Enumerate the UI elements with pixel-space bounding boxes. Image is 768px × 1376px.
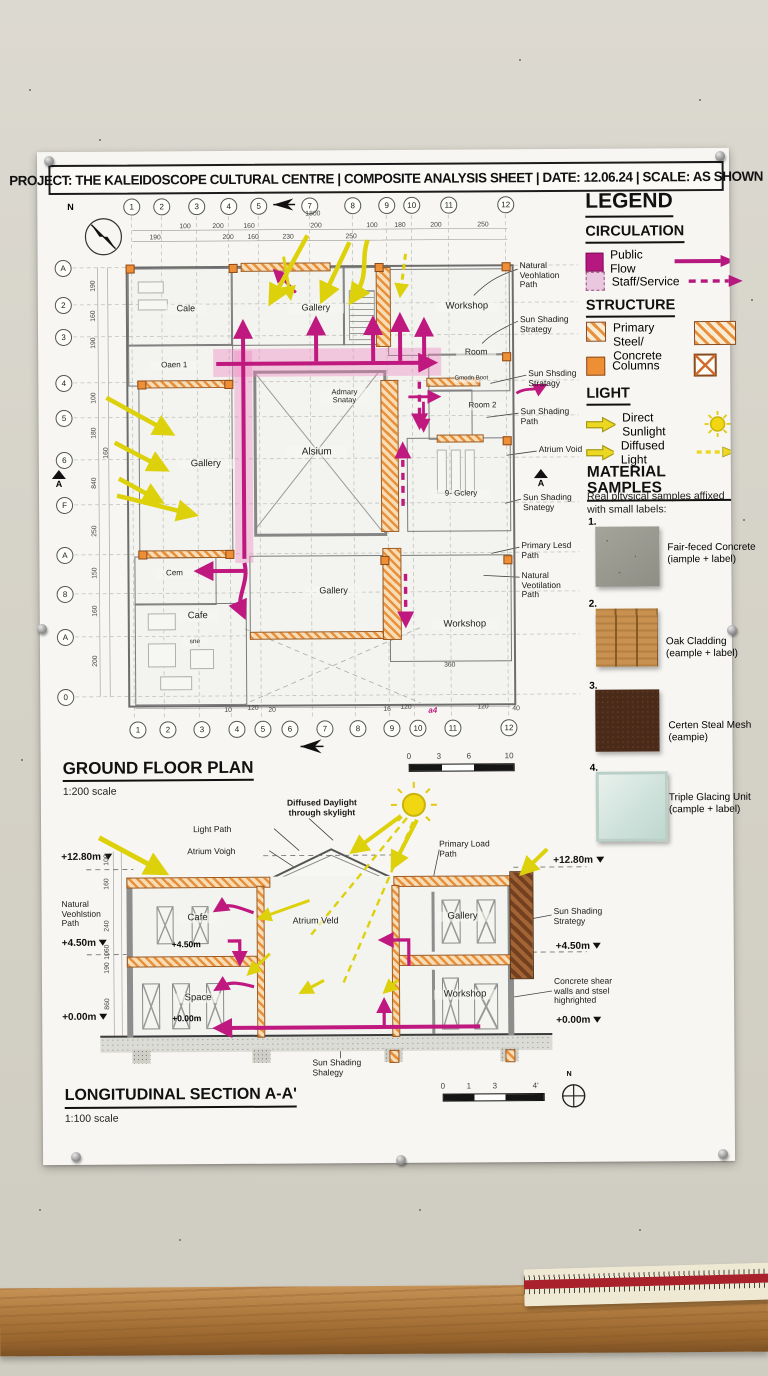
dim-label: 1060 [104, 945, 111, 960]
grid-bubble: F [56, 497, 73, 514]
dim-label: 160 [103, 878, 110, 889]
grid-bubble: 3 [188, 198, 205, 215]
material-sample-oak [596, 608, 658, 666]
dim-label: 120 [247, 705, 258, 712]
grid-bubble: 8 [349, 720, 366, 737]
material-sample-corten [595, 689, 659, 751]
legend-title: LEGEND [585, 190, 673, 218]
room-label: Gallery [288, 303, 344, 313]
scalebar-tick: 3 [437, 752, 442, 761]
section-cut-arrow [295, 734, 323, 756]
push-pin [727, 625, 737, 635]
push-pin [37, 624, 47, 634]
grid-bubble: 10 [409, 720, 426, 737]
dim-label: 190 [90, 280, 97, 291]
dim-label: 190 [104, 962, 111, 973]
callout-label: Sun Shading Shalegy [312, 1058, 368, 1077]
dim-label: 360 [444, 662, 455, 669]
room-label: Space [176, 993, 220, 1004]
material-label: Certen Steal Mesh (eampie) [668, 720, 758, 745]
section-label: Sun Shading Strategy [554, 907, 616, 926]
callout-label: Sun Shading Strategy [520, 315, 578, 334]
level-label: +12.80m [553, 855, 604, 866]
grid-bubble: 3 [193, 721, 210, 738]
legend-label: Staff/Service [612, 274, 680, 288]
dim-label: 160 [92, 605, 99, 616]
room-label: Gmodn Boot [454, 375, 488, 382]
level-label: +4.50m [62, 938, 107, 949]
dim-label: 250 [477, 221, 488, 228]
grid-bubble: 6 [56, 452, 73, 469]
grid-bubble: 1 [123, 198, 140, 215]
grid-bubble: 2 [55, 297, 72, 314]
diffused-dashed-arrow-icon [694, 445, 730, 459]
grid-bubble: A [56, 547, 73, 564]
level-inner: +4.50m [172, 939, 201, 949]
public-flow-swatch [586, 252, 604, 271]
grid-bubble: 0 [57, 689, 74, 706]
primary-structure-swatch [586, 322, 606, 342]
room-label: Workshop [436, 301, 498, 312]
level-label: +0.00m [556, 1015, 601, 1026]
staff-service-arrow-icon [686, 273, 742, 287]
material-sample-concrete [595, 526, 659, 586]
dim-label: 190 [149, 234, 160, 241]
grid-bubble: 3 [55, 329, 72, 346]
dim-label: 1800 [305, 210, 320, 217]
dim-label: 120 [477, 703, 488, 710]
dim-label: 860 [104, 998, 111, 1009]
room-label: sne [182, 638, 208, 645]
legend-item-direct-sunlight: Direct Sunlight [585, 410, 731, 439]
sun-icon [704, 410, 731, 438]
section-label: Diffused Daylight through skylight [276, 798, 368, 818]
grid-bubble: 11 [444, 720, 461, 737]
callout-label: Natural Veotilation Path [521, 571, 579, 600]
dim-label: 100 [179, 223, 190, 230]
scalebar-tick: 0 [407, 752, 412, 761]
callout-label: Primary Lesd Path [521, 541, 579, 560]
dim-label: 190 [90, 337, 97, 348]
grid-bubble: 5 [250, 198, 267, 215]
columns-swatch [586, 356, 605, 375]
dim-label: 840 [91, 477, 98, 488]
dim-label: 230 [282, 234, 293, 241]
north-compass-icon [73, 207, 125, 259]
public-flow-arrow-icon [673, 254, 730, 268]
grid-bubble: 5 [55, 410, 72, 427]
callout-label: Atrium Void [539, 445, 585, 455]
room-label: Cafe [178, 611, 218, 622]
legend-item-staff-service: Staff/Service [586, 271, 743, 291]
scalebar-tick: 6 [467, 751, 472, 760]
room-label: Room [456, 347, 496, 357]
room-label: Cafe [178, 913, 218, 924]
section-label: Light Path [193, 825, 247, 835]
primary-structure-sample [694, 321, 736, 345]
material-label: Oak Cladding (eample + label) [666, 636, 760, 661]
room-label: Atrium Veld [292, 916, 340, 926]
dim-label: 120 [400, 704, 411, 711]
dim-label: 200 [212, 223, 223, 230]
dim-label: 10 [224, 707, 232, 714]
legend-circulation-title: CIRCULATION [585, 224, 684, 244]
room-label: Workshop [432, 619, 498, 630]
push-pin [44, 156, 54, 166]
dim-label: 200 [222, 234, 233, 241]
dim-marker: a4 [428, 706, 437, 715]
grid-bubble: 1 [129, 721, 146, 738]
legend-label: Columns [612, 358, 686, 372]
dim-label: 250 [345, 233, 356, 240]
section-north-compass-icon [557, 1077, 591, 1111]
grid-bubble: 4 [228, 721, 245, 738]
level-label: +4.50m [556, 941, 601, 952]
scalebar-tick: 0 [441, 1082, 446, 1091]
dim-label: 100 [90, 392, 97, 403]
room-label: Cem [155, 569, 193, 578]
room-label: Gallery [436, 911, 490, 922]
legend-light-title: LIGHT [586, 387, 630, 406]
grid-bubble: 11 [440, 197, 457, 214]
diffused-light-arrow-icon [585, 445, 614, 461]
scalebar-tick: 4' [533, 1081, 539, 1090]
section-label: Atrium Voigh [187, 847, 249, 857]
material-sample-glass [596, 771, 668, 841]
callout-label: Sun Shading Snategy [523, 493, 581, 512]
scale-ruler [524, 1263, 768, 1307]
callout-label: Natural Veohlation Path [520, 261, 578, 290]
room-label: Admary Snatay [320, 388, 368, 405]
plan-scale: 1:200 scale [63, 786, 117, 798]
grid-bubble: A [57, 629, 74, 646]
dim-label: 16 [383, 706, 391, 713]
section-scale: 1:100 scale [65, 1113, 119, 1125]
north-label: N [567, 1071, 572, 1078]
level-inner: +0.00m [172, 1013, 201, 1023]
scalebar-tick: 3 [493, 1081, 498, 1090]
grid-bubble: 4 [55, 375, 72, 392]
section-cut-arrow [269, 195, 295, 215]
section-label: Primary Load Path [439, 839, 491, 858]
staff-service-swatch [586, 272, 605, 291]
dim-label: 150 [91, 567, 98, 578]
legend-label: Direct Sunlight [622, 410, 697, 438]
section-label: Concrete shear walls and stsel highright… [554, 977, 620, 1006]
room-label: Oaen 1 [150, 361, 198, 370]
north-label: N [67, 202, 74, 212]
dim-label: 40 [512, 705, 520, 712]
room-label: Room 2 [460, 401, 504, 410]
grid-bubble: 10 [403, 197, 420, 214]
dim-label: 200 [430, 222, 441, 229]
dim-label: 200 [310, 222, 321, 229]
grid-bubble: 5 [254, 721, 271, 738]
dim-label: 20 [268, 707, 276, 714]
dim-label: 180 [394, 222, 405, 229]
dim-label: 100 [103, 854, 110, 865]
legend-structure-title: STRUCTURE [586, 298, 676, 318]
column-xbox-icon [693, 353, 717, 377]
plan-scalebar [409, 763, 515, 772]
grid-bubble: 8 [344, 197, 361, 214]
section-scalebar [443, 1093, 545, 1102]
grid-bubble: 2 [153, 198, 170, 215]
grid-bubble: 4 [220, 198, 237, 215]
direct-sunlight-arrow-icon [585, 417, 616, 433]
push-pin [715, 151, 725, 161]
materials-subtitle: Real pltysical samples affixed with smal… [587, 490, 737, 516]
dim-label: 160 [243, 223, 254, 230]
dim-label: 160 [103, 447, 110, 458]
scalebar-tick: 10 [505, 751, 514, 760]
dim-label: 250 [91, 525, 98, 536]
material-label: Fair-feced Concrete (iample + label) [667, 542, 759, 567]
dim-label: 200 [92, 655, 99, 666]
grid-bubble: 12 [497, 196, 514, 213]
dim-label: 240 [104, 920, 111, 931]
room-label: Gallery [177, 459, 235, 470]
legend-label: Diffused Light [621, 438, 688, 466]
dim-label: 160 [247, 234, 258, 241]
poster-sheet: PROJECT: THE KALEIDOSCOPE CULTURAL CENTR… [37, 148, 735, 1165]
grid-bubble: 12 [500, 719, 517, 736]
grid-bubble: A [55, 260, 72, 277]
push-pin [71, 1152, 81, 1162]
section-title: LONGITUDINAL SECTION A-A' [65, 1087, 297, 1109]
scalebar-tick: 1 [467, 1081, 472, 1090]
level-label: +0.00m [62, 1012, 107, 1023]
legend-item-columns: Columns [586, 353, 717, 378]
dim-label: 160 [90, 310, 97, 321]
grid-bubble: 2 [159, 721, 176, 738]
grid-bubble: 9 [383, 720, 400, 737]
material-label: Triple Glacing Unit (cample + label) [669, 792, 761, 817]
dim-label: 180 [91, 427, 98, 438]
push-pin [718, 1149, 728, 1159]
room-label: 9- Gclery [431, 489, 491, 498]
plan-title: GROUND FLOOR PLAN [63, 759, 254, 782]
room-label: Cale [166, 304, 206, 314]
grid-bubble: 9 [378, 197, 395, 214]
callout-label: Sun Shsding Stratagy [528, 369, 586, 388]
grid-bubble: 8 [57, 586, 74, 603]
room-label: Workshop [434, 989, 496, 1000]
section-marker-left: A [51, 470, 67, 489]
room-label: Alsium [287, 446, 347, 457]
room-label: Gallery [306, 586, 362, 596]
callout-label: Sun Shading Path [520, 407, 578, 426]
section-marker-right: A [533, 469, 549, 488]
dim-label: 100 [366, 222, 377, 229]
push-pin [396, 1155, 406, 1165]
